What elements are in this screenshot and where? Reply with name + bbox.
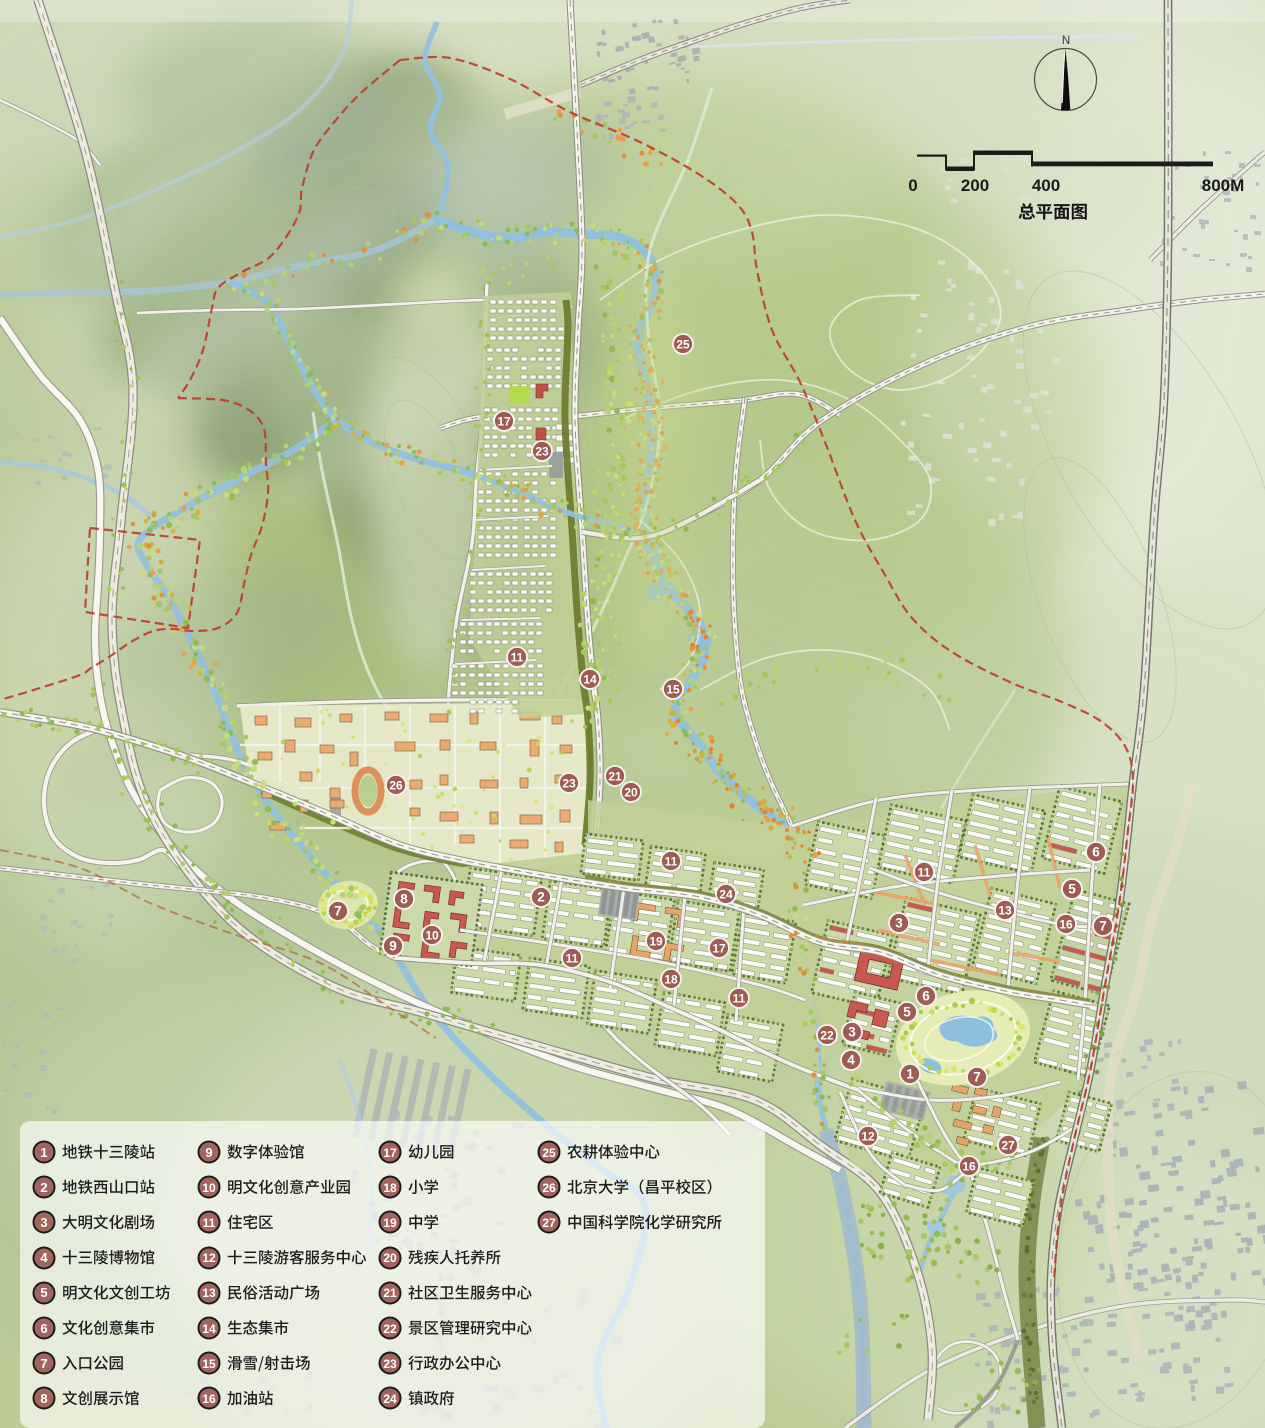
svg-text:25: 25 <box>676 337 690 351</box>
svg-text:16: 16 <box>1059 917 1073 931</box>
svg-text:1: 1 <box>906 1066 914 1081</box>
svg-text:23: 23 <box>535 444 549 458</box>
svg-text:5: 5 <box>903 1004 911 1019</box>
svg-text:13: 13 <box>998 903 1012 917</box>
svg-text:3: 3 <box>40 1215 47 1230</box>
svg-text:11: 11 <box>665 854 678 868</box>
svg-text:200: 200 <box>961 176 989 195</box>
svg-text:19: 19 <box>649 934 663 948</box>
svg-text:8: 8 <box>400 891 408 906</box>
svg-text:19: 19 <box>383 1216 397 1230</box>
svg-text:0: 0 <box>908 176 917 195</box>
svg-text:22: 22 <box>383 1322 397 1336</box>
svg-text:11: 11 <box>511 650 524 664</box>
svg-text:24: 24 <box>719 887 733 901</box>
svg-text:2: 2 <box>537 889 545 904</box>
svg-text:3: 3 <box>895 915 903 930</box>
svg-text:11: 11 <box>203 1216 216 1230</box>
svg-text:5: 5 <box>1068 881 1076 896</box>
svg-text:24: 24 <box>383 1392 397 1406</box>
svg-text:20: 20 <box>624 785 638 799</box>
svg-text:12: 12 <box>202 1251 216 1265</box>
svg-text:8: 8 <box>40 1391 47 1406</box>
svg-text:21: 21 <box>383 1286 397 1300</box>
svg-text:13: 13 <box>202 1286 216 1300</box>
svg-text:26: 26 <box>389 778 403 792</box>
svg-text:18: 18 <box>383 1181 397 1195</box>
svg-text:11: 11 <box>733 991 746 1005</box>
svg-text:12: 12 <box>861 1129 875 1143</box>
svg-text:17: 17 <box>712 941 726 955</box>
svg-text:16: 16 <box>962 1159 976 1173</box>
svg-text:11: 11 <box>566 951 579 965</box>
svg-text:10: 10 <box>425 928 439 942</box>
svg-text:9: 9 <box>389 938 397 953</box>
svg-text:20: 20 <box>383 1251 397 1265</box>
svg-text:4: 4 <box>847 1052 855 1067</box>
svg-text:400: 400 <box>1032 176 1060 195</box>
svg-text:4: 4 <box>40 1250 48 1265</box>
svg-text:1: 1 <box>40 1145 47 1160</box>
svg-text:800M: 800M <box>1202 176 1245 195</box>
svg-text:11: 11 <box>918 865 931 879</box>
svg-text:6: 6 <box>1092 844 1100 859</box>
svg-text:3: 3 <box>848 1024 856 1039</box>
svg-text:10: 10 <box>202 1181 216 1195</box>
svg-text:21: 21 <box>608 769 622 783</box>
svg-text:23: 23 <box>383 1357 397 1371</box>
svg-text:14: 14 <box>202 1322 216 1336</box>
svg-text:17: 17 <box>383 1146 397 1160</box>
svg-text:27: 27 <box>542 1216 556 1230</box>
svg-text:5: 5 <box>40 1285 47 1300</box>
svg-text:7: 7 <box>973 1069 981 1084</box>
svg-text:15: 15 <box>202 1357 216 1371</box>
svg-text:7: 7 <box>1099 918 1107 933</box>
svg-text:26: 26 <box>542 1181 556 1195</box>
svg-text:17: 17 <box>497 414 511 428</box>
svg-text:25: 25 <box>542 1146 556 1160</box>
svg-text:6: 6 <box>40 1321 47 1336</box>
svg-text:14: 14 <box>583 672 597 686</box>
svg-text:18: 18 <box>664 972 678 986</box>
svg-text:27: 27 <box>1001 1138 1015 1152</box>
svg-text:22: 22 <box>820 1028 834 1042</box>
svg-text:16: 16 <box>202 1392 216 1406</box>
svg-text:9: 9 <box>205 1145 212 1160</box>
svg-text:7: 7 <box>40 1356 47 1371</box>
svg-text:2: 2 <box>40 1180 47 1195</box>
svg-text:6: 6 <box>922 988 930 1003</box>
svg-text:15: 15 <box>666 682 680 696</box>
svg-text:23: 23 <box>562 776 576 790</box>
svg-text:N: N <box>1062 35 1070 47</box>
svg-text:7: 7 <box>334 903 342 918</box>
